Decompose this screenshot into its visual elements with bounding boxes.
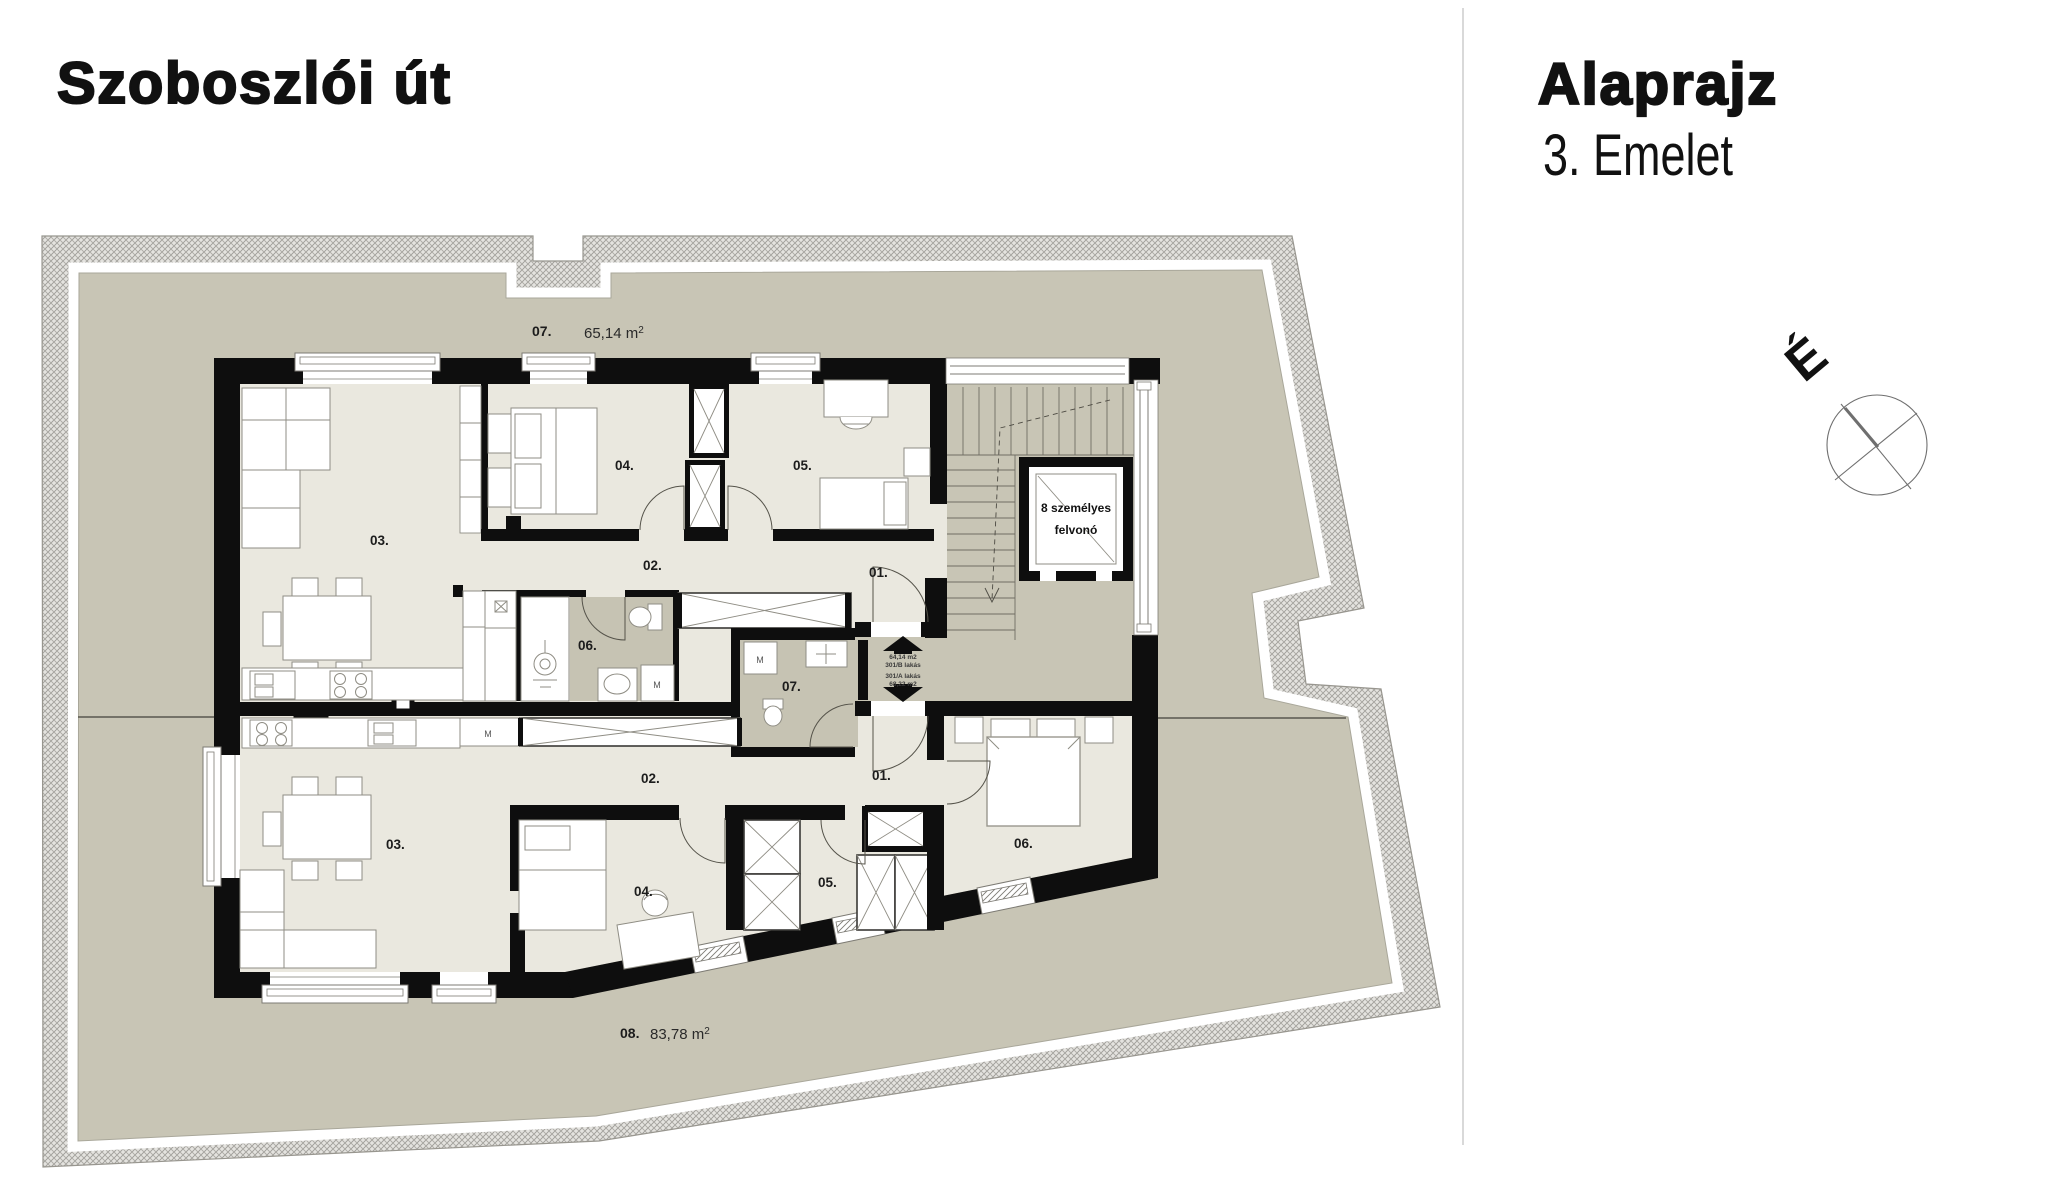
svg-text:04.: 04.: [634, 884, 653, 899]
svg-text:M: M: [484, 729, 492, 739]
svg-text:68,22 m2: 68,22 m2: [889, 681, 917, 688]
svg-text:07.: 07.: [532, 323, 551, 339]
svg-text:07.: 07.: [782, 679, 801, 694]
svg-text:05.: 05.: [793, 458, 812, 473]
svg-text:Szoboszlói út: Szoboszlói út: [57, 51, 452, 116]
svg-text:06.: 06.: [578, 638, 597, 653]
svg-text:301/B lakás: 301/B lakás: [885, 662, 921, 669]
svg-text:65,14 m2: 65,14 m2: [584, 325, 644, 342]
svg-text:3. Emelet: 3. Emelet: [1543, 123, 1733, 188]
svg-text:301/A lakás: 301/A lakás: [885, 673, 921, 680]
svg-text:05.: 05.: [818, 875, 837, 890]
svg-text:M: M: [653, 680, 661, 690]
svg-text:M: M: [756, 655, 764, 665]
svg-text:08.: 08.: [620, 1025, 639, 1041]
svg-text:04.: 04.: [615, 458, 634, 473]
svg-text:01.: 01.: [869, 565, 888, 580]
svg-text:02.: 02.: [643, 558, 662, 573]
svg-text:06.: 06.: [1014, 836, 1033, 851]
svg-text:83,78 m2: 83,78 m2: [650, 1026, 710, 1043]
svg-text:felvonó: felvonó: [1055, 523, 1098, 537]
svg-text:64,14 m2: 64,14 m2: [889, 654, 917, 661]
svg-text:Alaprajz: Alaprajz: [1538, 52, 1778, 117]
svg-text:03.: 03.: [386, 837, 405, 852]
svg-text:02.: 02.: [641, 771, 660, 786]
svg-text:8 személyes: 8 személyes: [1041, 501, 1111, 515]
svg-text:03.: 03.: [370, 533, 389, 548]
svg-text:01.: 01.: [872, 768, 891, 783]
